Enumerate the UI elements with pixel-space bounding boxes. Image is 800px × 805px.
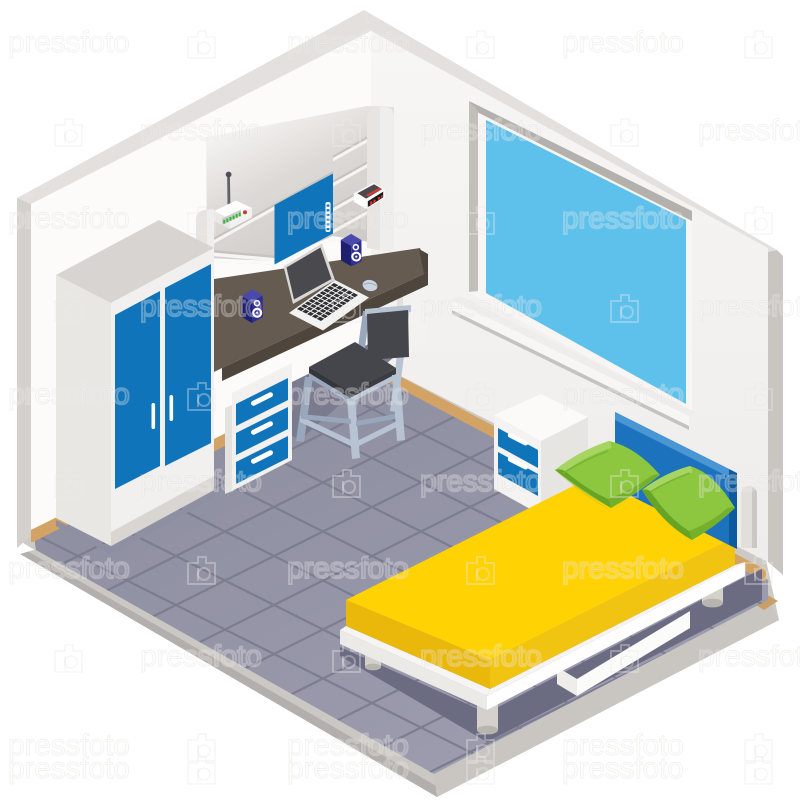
- svg-text:pressfoto: pressfoto: [140, 465, 262, 498]
- svg-text:pressfoto: pressfoto: [698, 640, 800, 673]
- svg-text:pressfoto: pressfoto: [8, 26, 130, 59]
- svg-text:pressfoto: pressfoto: [420, 465, 542, 498]
- svg-text:pressfoto: pressfoto: [287, 202, 409, 235]
- svg-text:pressfoto: pressfoto: [140, 640, 262, 673]
- svg-text:pressfoto: pressfoto: [698, 290, 800, 323]
- svg-text:pressfoto: pressfoto: [8, 202, 130, 235]
- svg-text:pressfoto: pressfoto: [287, 552, 409, 585]
- svg-text:pressfoto: pressfoto: [562, 202, 684, 235]
- svg-text:pressfoto: pressfoto: [698, 465, 800, 498]
- svg-text:pressfoto: pressfoto: [140, 114, 262, 147]
- svg-text:pressfoto: pressfoto: [562, 26, 684, 59]
- svg-text:pressfoto: pressfoto: [562, 552, 684, 585]
- svg-text:pressfoto: pressfoto: [8, 752, 130, 785]
- svg-text:pressfoto: pressfoto: [8, 552, 130, 585]
- svg-text:pressfoto: pressfoto: [287, 26, 409, 59]
- svg-text:pressfoto: pressfoto: [140, 290, 262, 323]
- svg-text:pressfoto: pressfoto: [8, 378, 130, 411]
- svg-text:pressfoto: pressfoto: [698, 114, 800, 147]
- svg-text:pressfoto: pressfoto: [287, 378, 409, 411]
- svg-text:pressfoto: pressfoto: [420, 114, 542, 147]
- svg-text:pressfoto: pressfoto: [420, 290, 542, 323]
- svg-text:pressfoto: pressfoto: [562, 752, 684, 785]
- svg-text:pressfoto: pressfoto: [287, 752, 409, 785]
- svg-text:pressfoto: pressfoto: [420, 640, 542, 673]
- svg-text:pressfoto: pressfoto: [562, 378, 684, 411]
